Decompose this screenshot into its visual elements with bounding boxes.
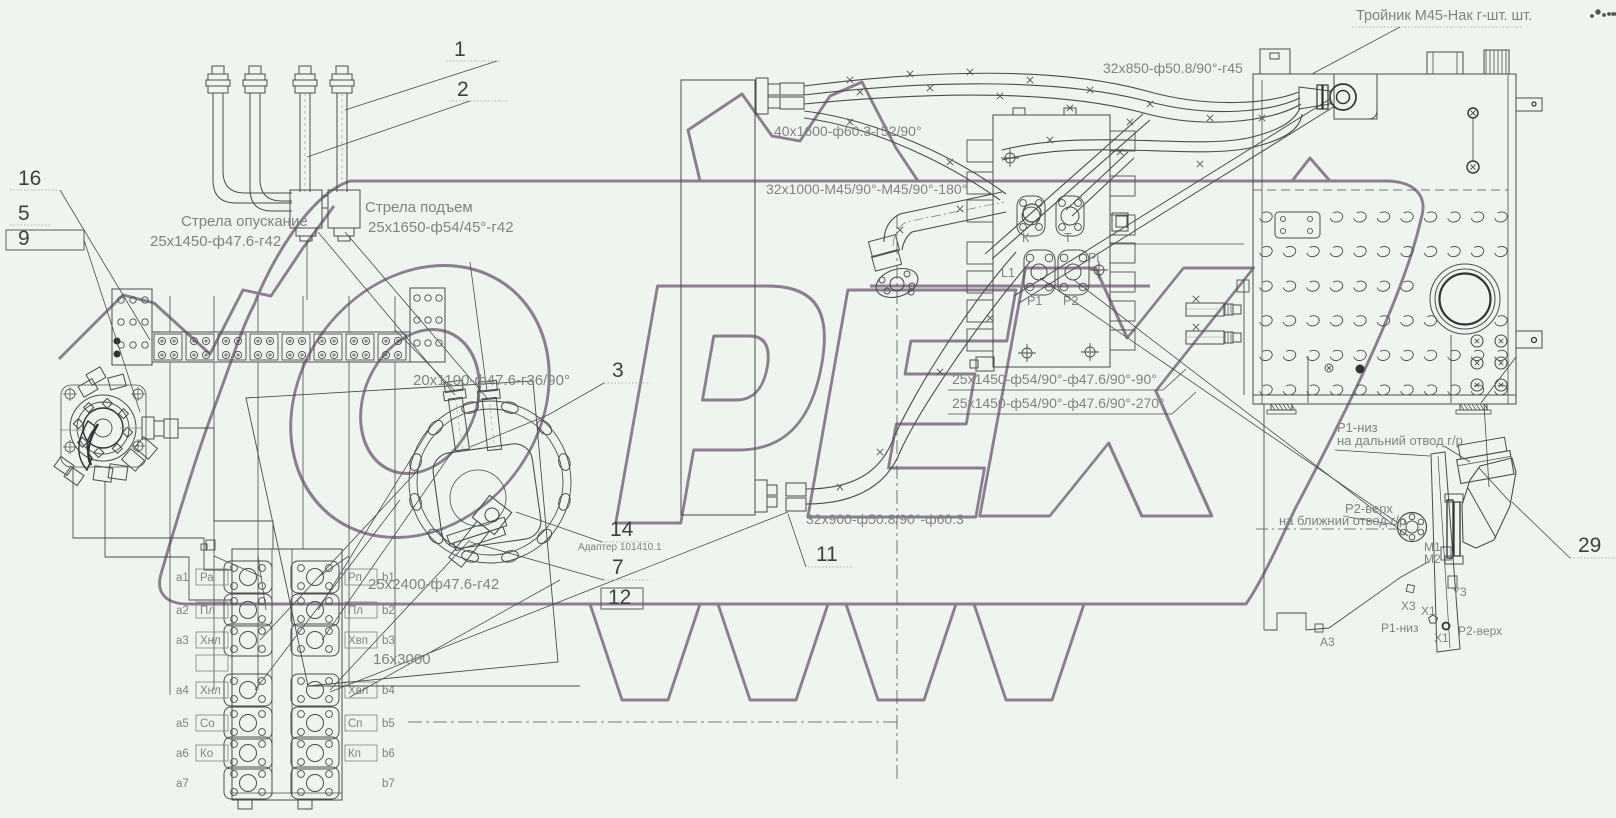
- svg-text:Кп: Кп: [348, 748, 361, 760]
- svg-text:b6: b6: [382, 748, 395, 760]
- svg-text:Рп: Рп: [348, 572, 362, 584]
- svg-text:Ко: Ко: [200, 748, 213, 760]
- svg-text:7: 7: [612, 556, 624, 579]
- svg-text:Y3: Y3: [1452, 585, 1467, 599]
- svg-text:а5: а5: [176, 718, 189, 730]
- svg-text:25х1450-ф54/90°-ф47.6/90°-270°: 25х1450-ф54/90°-ф47.6/90°-270°: [952, 395, 1165, 411]
- svg-text:1: 1: [454, 38, 466, 61]
- svg-text:Р2-верх: Р2-верх: [1458, 624, 1502, 638]
- svg-text:Ра: Ра: [200, 572, 214, 584]
- svg-text:а3: а3: [176, 635, 189, 647]
- svg-text:а7: а7: [176, 778, 189, 790]
- svg-text:а2: а2: [176, 605, 189, 617]
- svg-text:Хвп: Хвп: [348, 635, 368, 647]
- svg-text:Хнл: Хнл: [200, 685, 221, 697]
- svg-text:40х1600-ф60.3-г52/90°: 40х1600-ф60.3-г52/90°: [774, 123, 922, 139]
- svg-text:Р2: Р2: [1063, 294, 1078, 308]
- svg-text:а1: а1: [176, 572, 189, 584]
- svg-text:Тройник М45-Нак г-шт. шт.: Тройник М45-Нак г-шт. шт.: [1356, 8, 1532, 24]
- svg-text:Хвл: Хвл: [348, 685, 368, 697]
- svg-text:К: К: [1022, 231, 1030, 245]
- svg-text:Стрела опускание: Стрела опускание: [181, 213, 308, 230]
- svg-text:Р1-низ: Р1-низ: [1381, 621, 1419, 635]
- svg-text:5: 5: [18, 202, 30, 225]
- svg-text:Pi: Pi: [1088, 251, 1099, 265]
- svg-text:25х1450-ф54/90°-ф47.6/90°-90°: 25х1450-ф54/90°-ф47.6/90°-90°: [952, 371, 1157, 387]
- svg-text:32х850-ф50.8/90°-г45: 32х850-ф50.8/90°-г45: [1103, 60, 1243, 76]
- svg-text:Р1: Р1: [1027, 294, 1042, 308]
- svg-text:25х2400-ф47.6-г42: 25х2400-ф47.6-г42: [368, 576, 499, 593]
- svg-text:Хнл: Хнл: [200, 635, 221, 647]
- svg-text:b3: b3: [382, 635, 395, 647]
- svg-text:Пл: Пл: [348, 605, 363, 617]
- svg-text:Адаптер 101410.1: Адаптер 101410.1: [578, 542, 662, 553]
- svg-text:а6: а6: [176, 748, 189, 760]
- svg-text:29: 29: [1578, 534, 1601, 557]
- svg-text:а4: а4: [176, 685, 189, 697]
- svg-text:Сп: Сп: [348, 718, 363, 730]
- svg-text:Т: Т: [1064, 231, 1072, 245]
- svg-text:Стрела подъем: Стрела подъем: [365, 199, 473, 216]
- svg-text:12: 12: [608, 586, 631, 609]
- svg-text:16х3000: 16х3000: [373, 651, 431, 668]
- svg-text:32х1000-М45/90°-М45/90°-180°: 32х1000-М45/90°-М45/90°-180°: [766, 181, 967, 197]
- svg-text:А3: А3: [1320, 635, 1335, 649]
- svg-text:X3: X3: [1401, 599, 1416, 613]
- svg-text:X1: X1: [1421, 604, 1436, 618]
- svg-text:25х1450-ф47.6-г42: 25х1450-ф47.6-г42: [150, 233, 281, 250]
- svg-text:b7: b7: [382, 778, 395, 790]
- svg-text:М2: М2: [1424, 552, 1441, 566]
- svg-text:b4: b4: [382, 685, 395, 697]
- svg-text:20х1100-ф47.6-г36/90°: 20х1100-ф47.6-г36/90°: [413, 372, 570, 389]
- svg-text:32х900-ф50.8/90°-ф60.3: 32х900-ф50.8/90°-ф60.3: [806, 511, 964, 527]
- svg-text:2: 2: [457, 78, 469, 101]
- svg-text:25х1650-ф54/45°-г42: 25х1650-ф54/45°-г42: [368, 219, 514, 236]
- svg-text:L1: L1: [1001, 266, 1015, 280]
- svg-text:Пл: Пл: [200, 605, 215, 617]
- svg-text:X1: X1: [1434, 631, 1449, 645]
- svg-text:b5: b5: [382, 718, 395, 730]
- svg-text:Со: Со: [200, 718, 215, 730]
- svg-text:16: 16: [18, 167, 41, 190]
- svg-text:3: 3: [612, 359, 624, 382]
- svg-text:на дальний отвод г/р: на дальний отвод г/р: [1337, 433, 1463, 448]
- svg-text:на ближний отвод г/р: на ближний отвод г/р: [1279, 513, 1406, 528]
- svg-text:b2: b2: [382, 605, 395, 617]
- svg-text:11: 11: [816, 543, 838, 566]
- svg-text:14: 14: [610, 518, 634, 541]
